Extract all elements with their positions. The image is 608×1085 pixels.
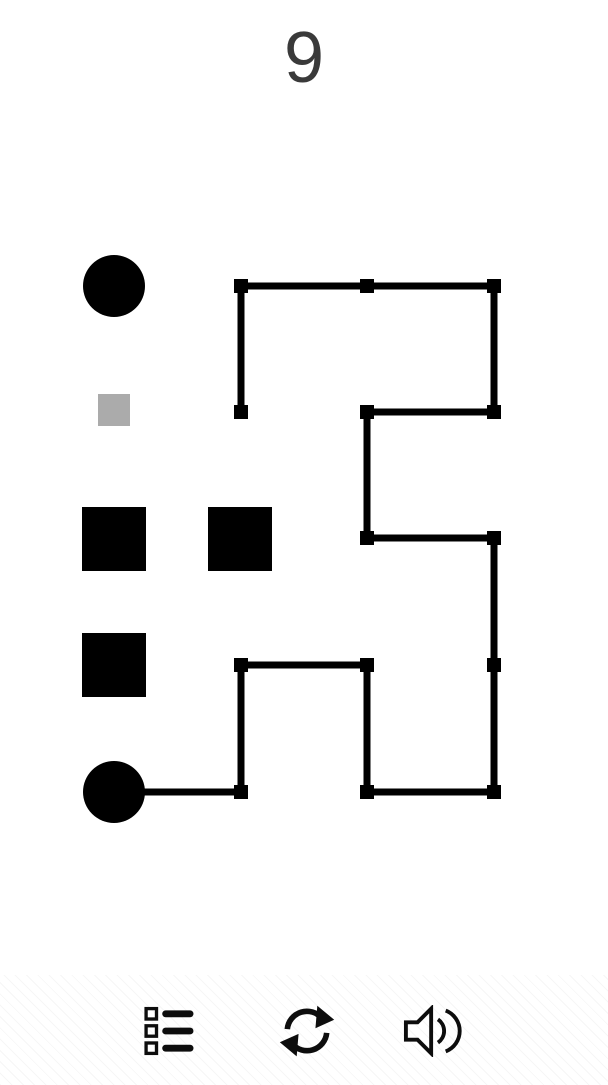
restart-button[interactable]	[273, 997, 341, 1065]
refresh-icon	[277, 1001, 337, 1061]
path-node	[487, 531, 501, 545]
path-node	[360, 279, 374, 293]
path-node	[360, 531, 374, 545]
start-dot-bottom-left[interactable]	[83, 761, 145, 823]
hint-gray-square	[98, 394, 130, 426]
list-icon	[144, 1006, 194, 1056]
path-node	[487, 785, 501, 799]
path-node	[487, 279, 501, 293]
path-node	[234, 279, 248, 293]
sound-button[interactable]	[402, 997, 470, 1065]
path-node	[234, 405, 248, 419]
path-node	[360, 658, 374, 672]
path-node	[487, 658, 501, 672]
game-screen: 9	[0, 0, 608, 1080]
start-dot-top-left[interactable]	[83, 255, 145, 317]
puzzle-canvas[interactable]	[0, 0, 608, 1080]
path-node	[360, 785, 374, 799]
path-node	[234, 785, 248, 799]
path-node	[234, 658, 248, 672]
block-square-1	[82, 507, 146, 571]
speaker-icon	[403, 1005, 469, 1057]
toolbar	[0, 975, 608, 1085]
path-node	[487, 405, 501, 419]
block-square-3	[82, 633, 146, 697]
levels-button[interactable]	[135, 997, 203, 1065]
block-square-2	[208, 507, 272, 571]
path-node	[360, 405, 374, 419]
